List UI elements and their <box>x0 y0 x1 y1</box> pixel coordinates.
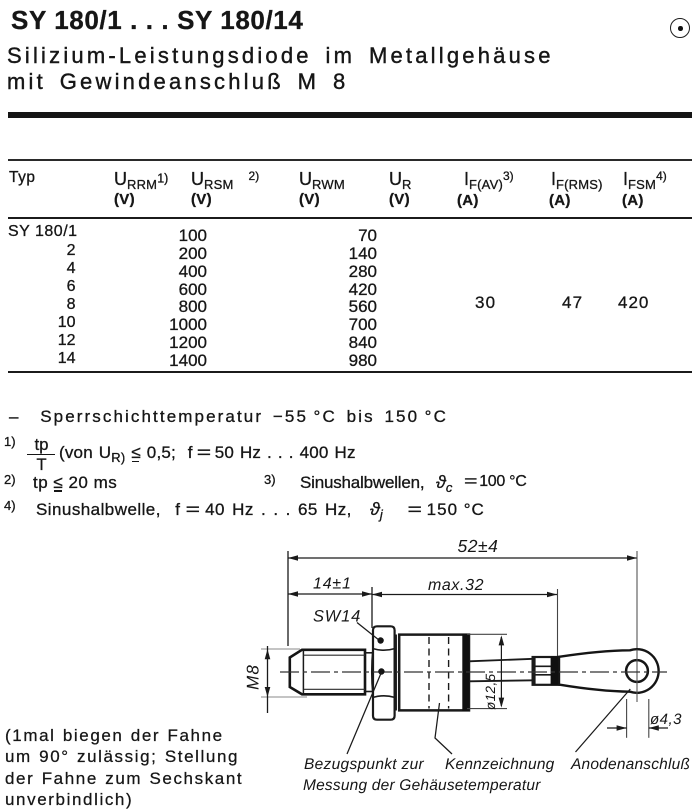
svg-text:ø12,5: ø12,5 <box>483 673 498 710</box>
svg-text:ø4,3: ø4,3 <box>650 711 682 728</box>
svg-text:Kennzeichnung: Kennzeichnung <box>445 756 555 773</box>
svg-text:14±1: 14±1 <box>313 576 352 593</box>
svg-text:max.32: max.32 <box>428 577 484 594</box>
svg-text:Anodenanschluß: Anodenanschluß <box>570 756 690 773</box>
svg-text:52±4: 52±4 <box>458 536 499 556</box>
svg-text:Messung der Gehäusetemperatur: Messung der Gehäusetemperatur <box>303 777 541 794</box>
svg-text:M8: M8 <box>244 664 263 690</box>
svg-text:SW14: SW14 <box>313 608 361 626</box>
svg-text:Bezugspunkt zur: Bezugspunkt zur <box>304 756 424 773</box>
